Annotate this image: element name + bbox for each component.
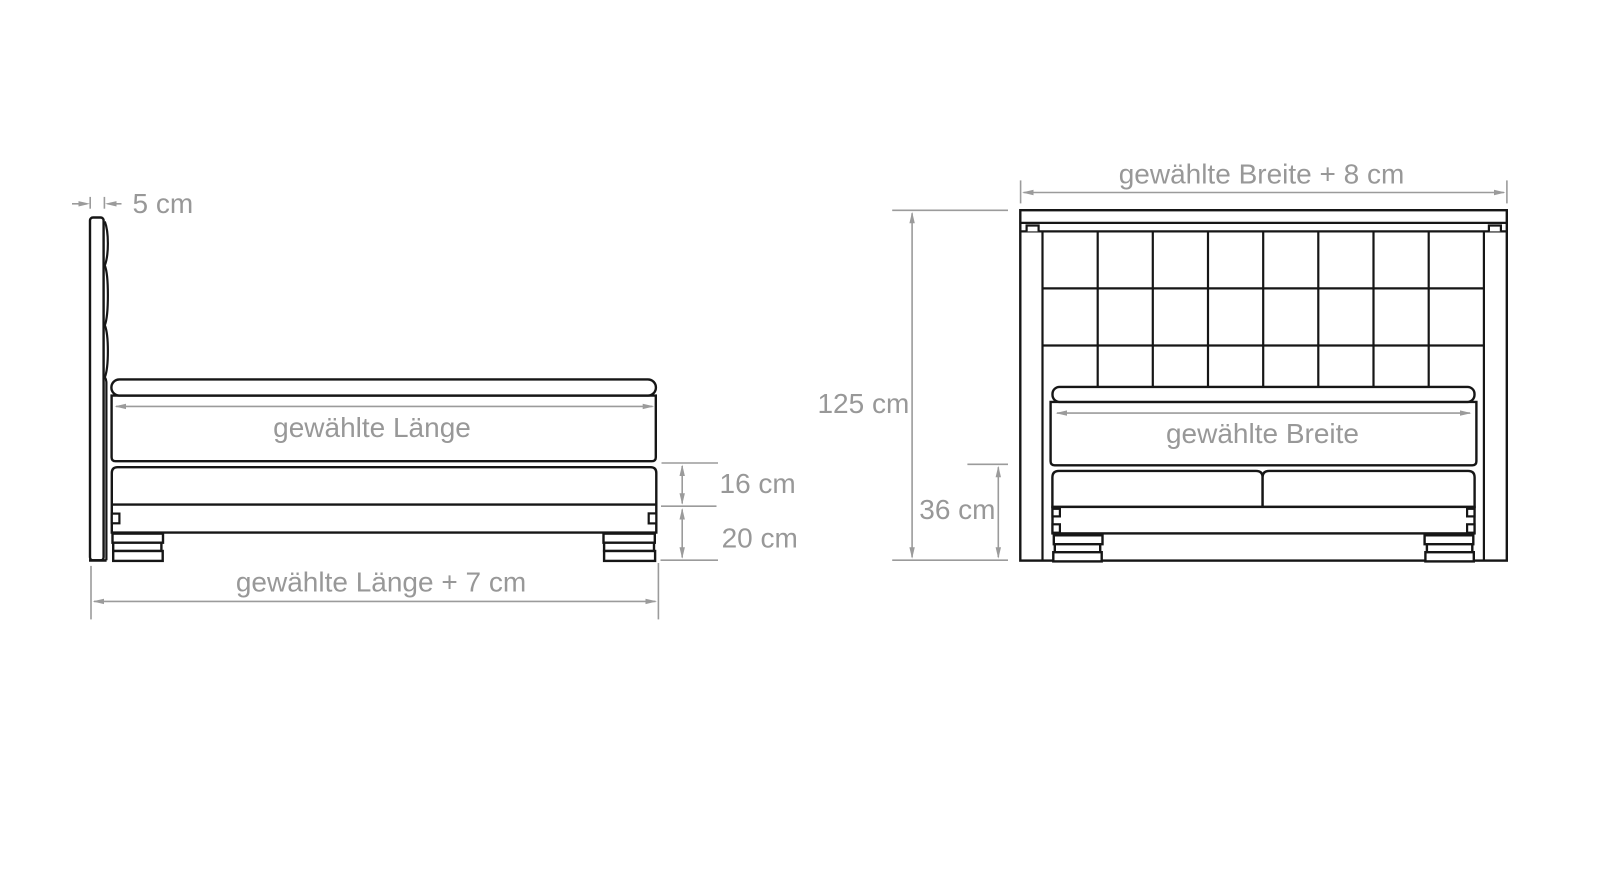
svg-text:20 cm: 20 cm [722, 522, 798, 553]
svg-text:gewählte Länge + 7 cm: gewählte Länge + 7 cm [236, 567, 526, 598]
svg-text:gewählte Breite + 8 cm: gewählte Breite + 8 cm [1119, 159, 1405, 190]
svg-text:16 cm: 16 cm [720, 468, 796, 499]
svg-text:gewählte Länge: gewählte Länge [273, 412, 471, 443]
svg-text:125 cm: 125 cm [817, 388, 909, 419]
svg-text:36 cm: 36 cm [919, 494, 995, 525]
svg-text:5 cm: 5 cm [133, 188, 194, 219]
svg-text:gewählte Breite: gewählte Breite [1166, 418, 1359, 449]
